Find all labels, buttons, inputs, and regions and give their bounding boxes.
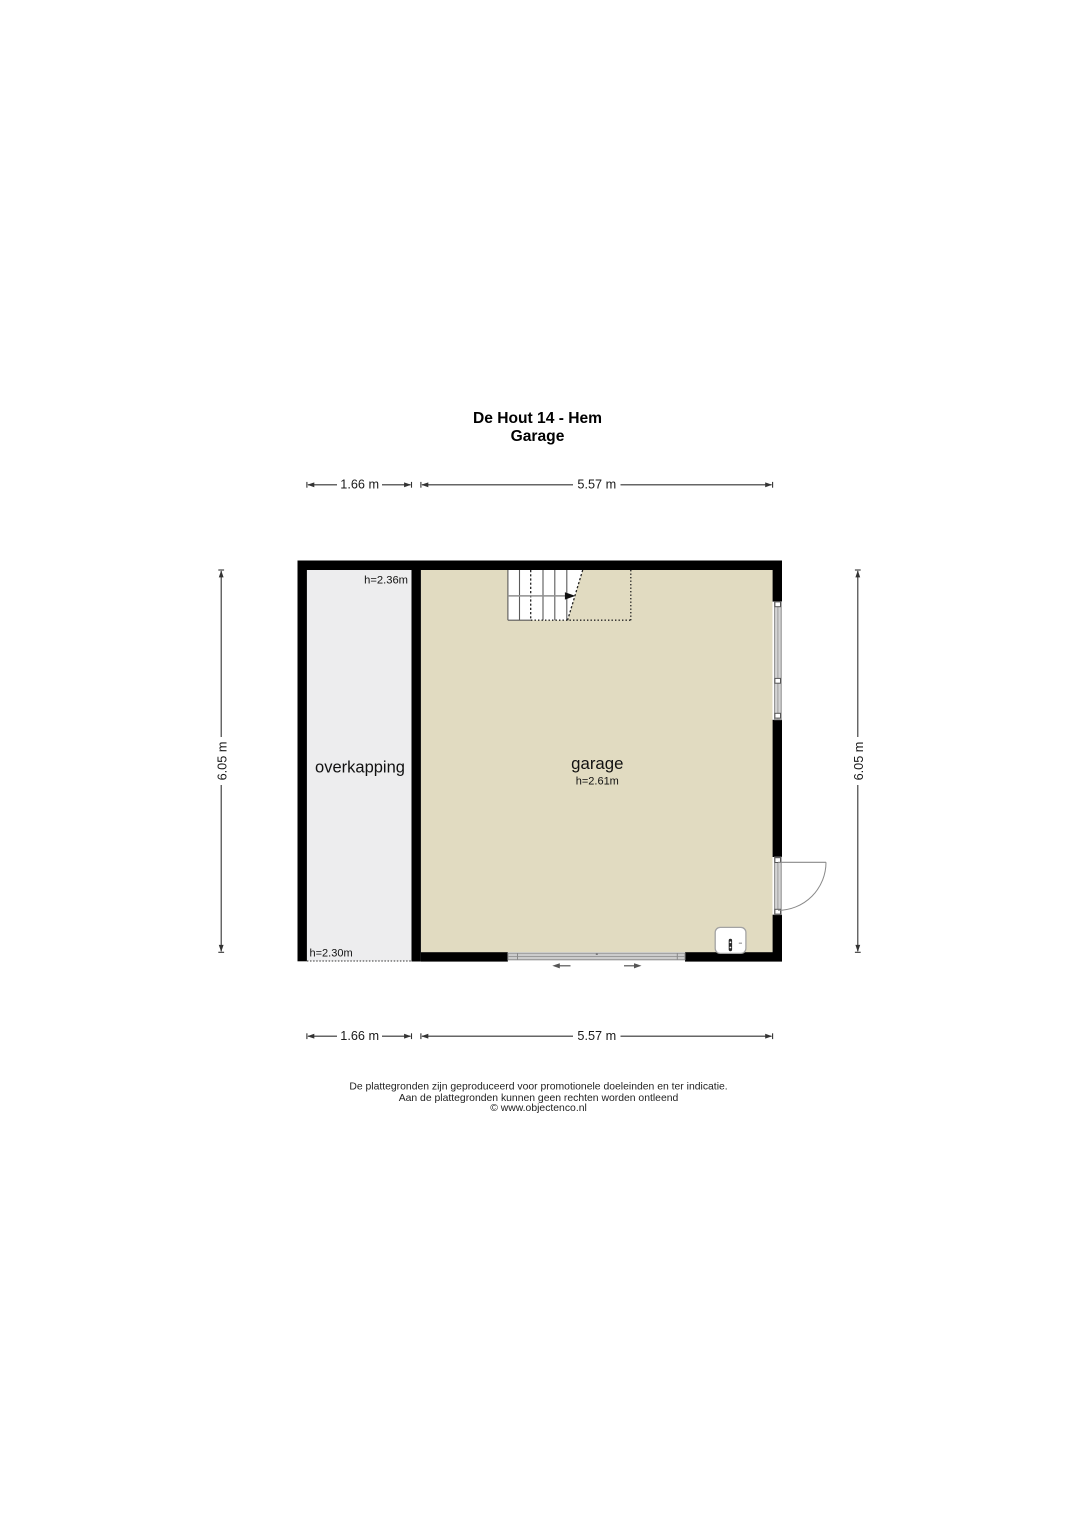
svg-text:h=2.36m: h=2.36m (364, 574, 408, 586)
svg-text:overkapping: overkapping (315, 759, 405, 777)
svg-text:garage: garage (571, 754, 623, 773)
svg-text:1.66 m: 1.66 m (340, 478, 379, 492)
svg-text:h=2.30m: h=2.30m (310, 948, 353, 960)
svg-text:De plattegronden zijn geproduc: De plattegronden zijn geproduceerd voor … (349, 1081, 727, 1092)
svg-text:5.57 m: 5.57 m (577, 1029, 616, 1043)
svg-text:Garage: Garage (511, 428, 565, 445)
svg-text:De Hout 14 - Hem: De Hout 14 - Hem (473, 410, 602, 427)
svg-text:1.66 m: 1.66 m (340, 1029, 379, 1043)
svg-text:6.05 m: 6.05 m (216, 742, 230, 781)
svg-text:h=2.61m: h=2.61m (576, 775, 619, 787)
svg-text:5.57 m: 5.57 m (577, 478, 616, 492)
svg-text:© www.objectenco.nl: © www.objectenco.nl (490, 1103, 587, 1114)
svg-text:6.05 m: 6.05 m (852, 742, 866, 781)
